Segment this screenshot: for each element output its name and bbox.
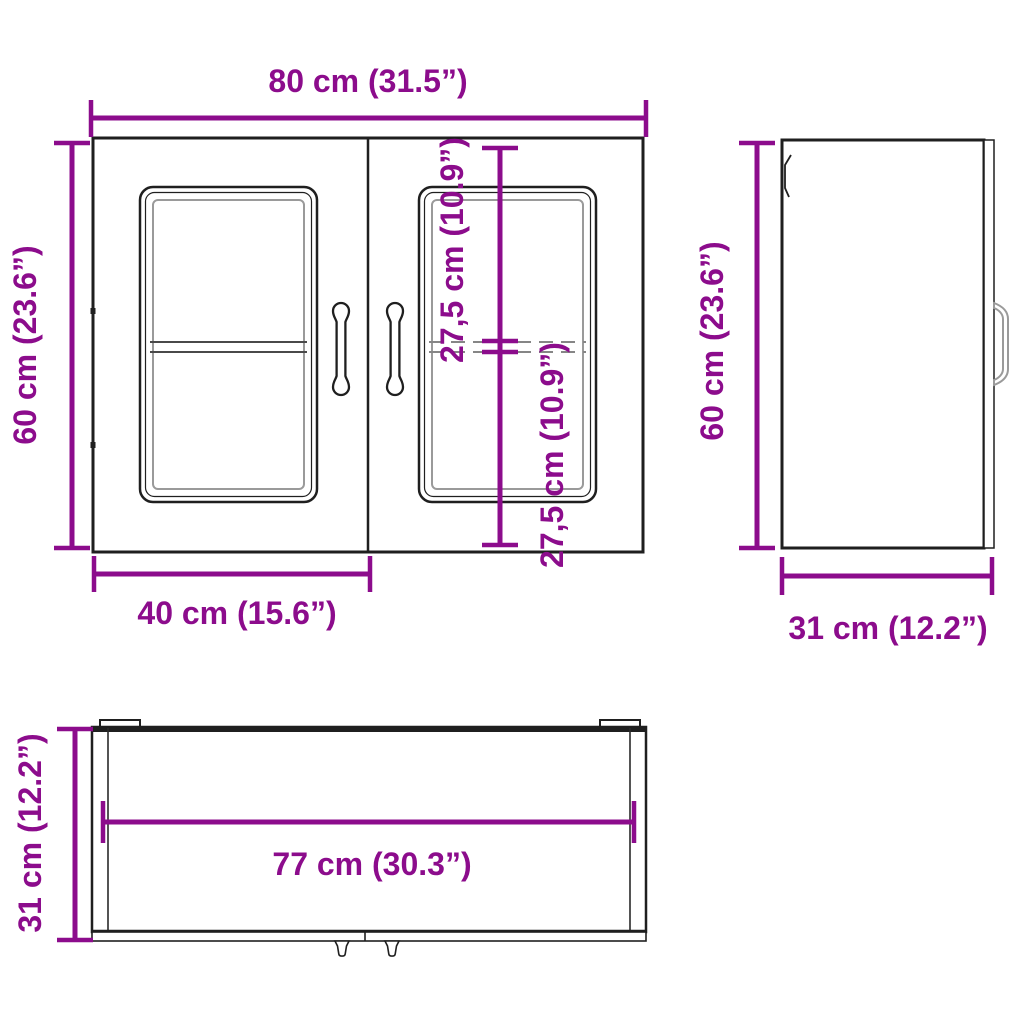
dim-front-door-width [94,556,370,592]
top-view [92,720,646,956]
side-cabinet-outline [782,140,984,548]
diagram-linework [0,0,1024,1024]
hinge-mark [91,442,96,448]
side-door-handle [994,303,1008,385]
front-height-label: 60 cm (23.6”) [9,245,41,444]
front-door-width-label: 40 cm (15.6”) [137,597,336,629]
dimension-diagram: 80 cm (31.5”) 60 cm (23.6”) 40 cm (15.6”… [0,0,1024,1024]
door-peg [385,941,399,956]
side-depth-label: 31 cm (12.2”) [788,612,987,644]
dim-top-depth [57,729,93,940]
top-depth-label: 31 cm (12.2”) [14,733,46,932]
top-door-edge-strip [92,932,646,941]
left-door-glass-panel [140,187,317,502]
side-door-front-panel [984,140,994,548]
dim-side-depth [782,557,992,595]
front-lower-section-label: 27,5 cm (10.9”) [536,342,568,568]
front-width-label: 80 cm (31.5”) [268,65,467,97]
side-view [782,140,1008,548]
top-cabinet-outline [92,727,646,932]
top-inner-width-label: 77 cm (30.3”) [272,848,471,880]
dim-front-width [91,100,646,137]
door-peg [335,941,349,956]
side-height-label: 60 cm (23.6”) [696,241,728,440]
dim-front-height [54,143,90,548]
dim-side-height [739,143,775,548]
hinge-mark [91,308,96,314]
front-upper-section-label: 27,5 cm (10.9”) [436,137,468,363]
